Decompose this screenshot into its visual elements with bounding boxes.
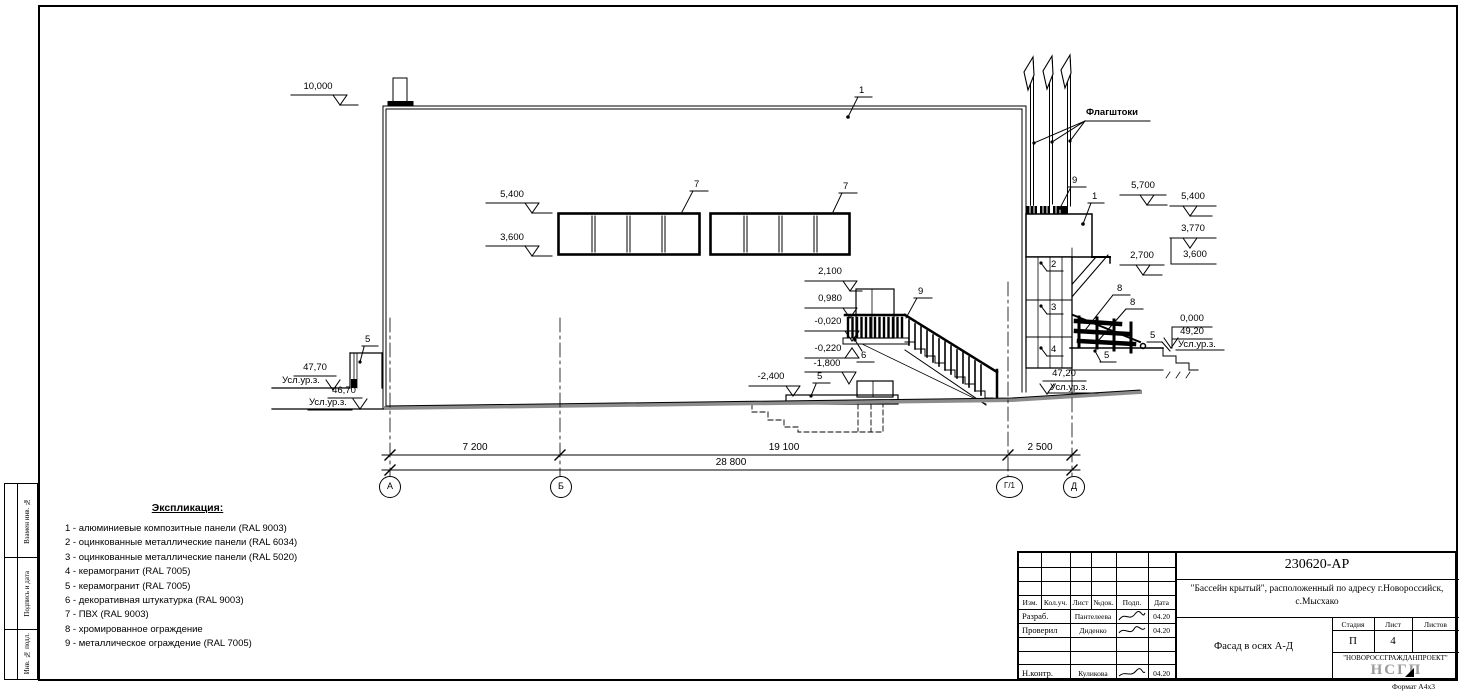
tb-role: Проверил (1022, 625, 1057, 635)
callout-7: 7 (843, 182, 848, 192)
tb-stage-value: П (1332, 635, 1374, 647)
dimension-7200: 7 200 (445, 443, 505, 454)
signature (1117, 667, 1147, 680)
window-bands (559, 214, 850, 255)
legend-item: 8 - хромированное ограждение (65, 623, 310, 637)
elevation-label-3770: 3,770 (1170, 224, 1216, 234)
title-block: Изм. Кол.уч. Лист №док. Подп. Дата Разра… (1017, 551, 1457, 680)
tb-stage-label: Стадия (1332, 620, 1374, 629)
tb-role: Разраб. (1022, 611, 1048, 621)
elevation-label-m0020: -0,020 (800, 317, 856, 327)
signature (1117, 624, 1147, 637)
building-outline (383, 78, 1026, 409)
dimension-19100: 19 100 (754, 443, 814, 454)
callout-9: 9 (1072, 176, 1077, 186)
elevation-label-5400-left: 5,400 (486, 190, 538, 200)
ground-level-label: Усл.ур.з. (282, 376, 320, 386)
legend-item: 2 - оцинкованные металлические панели (R… (65, 536, 310, 550)
tb-col-doc: №док. (1091, 598, 1116, 607)
callout-8: 8 (1117, 284, 1122, 294)
tb-name: Пантелеева (1070, 612, 1116, 621)
elevation-label-3600-left: 3,600 (486, 233, 538, 243)
tb-col-izm: Изм. (1019, 598, 1041, 607)
callout-9: 9 (918, 287, 923, 297)
ground-level-label: Усл.ур.з. (309, 398, 347, 408)
elevation-label-10000: 10,000 (291, 82, 345, 92)
tb-name: Диденко (1070, 626, 1116, 635)
elevation-label-4920: 49,20 (1172, 327, 1212, 337)
tb-drawing-title: Фасад в осях А-Д (1175, 641, 1332, 652)
callout-1: 1 (1092, 192, 1097, 202)
legend-item: 9 - металлическое ограждение (RAL 7005) (65, 637, 310, 651)
elevation-label-4770: 47,70 (294, 363, 336, 373)
legend-item: 7 - ПВХ (RAL 9003) (65, 608, 310, 622)
elevation-label-5400-right: 5,400 (1170, 192, 1216, 202)
entrance-tower (1026, 206, 1110, 391)
format-label: Формат А4х3 (1392, 682, 1435, 691)
org-logo: НСГП (1359, 662, 1434, 679)
callout-3: 3 (1051, 303, 1056, 313)
callout-5: 5 (1104, 351, 1109, 361)
elevation-label-m1800: -1,800 (800, 359, 854, 369)
ground-level-label: Усл.ур.з. (1050, 383, 1088, 393)
axis-bubble-g1: Г/1 (996, 476, 1023, 498)
logo-triangle-icon (1405, 668, 1414, 677)
elevation-label-0980: 0,980 (805, 294, 855, 304)
legend-item: 6 - декоративная штукатурка (RAL 9003) (65, 594, 310, 608)
tb-sheets-label: Листов (1412, 620, 1459, 629)
elevation-label-2100: 2,100 (805, 267, 855, 277)
tb-col-data: Дата (1148, 598, 1175, 607)
callout-8: 8 (1130, 298, 1135, 308)
strip-cell: Подпись и дата (17, 558, 36, 629)
tb-doc-number: 230620-АР (1175, 557, 1459, 573)
strip-cell: Взамен инв. № (17, 484, 36, 557)
tb-object-name: "Бассейн крытый", расположенный по адрес… (1181, 583, 1453, 609)
side-strip: Взамен инв. № Подпись и дата Инв. № подл… (4, 483, 38, 680)
drawing-sheet: 10,000 5,400 3,600 2,100 0,980 -0,020 -0… (0, 0, 1462, 691)
tb-sheet-label: Лист (1374, 620, 1412, 629)
tb-date: 04.20 (1148, 626, 1175, 635)
callout-1: 1 (859, 86, 864, 96)
dimension-2500: 2 500 (1010, 443, 1070, 454)
axis-bubble-a: А (379, 476, 401, 498)
elevation-label-2700: 2,700 (1120, 251, 1164, 261)
elevation-label-m2400: -2,400 (744, 372, 798, 382)
tb-sheet-value: 4 (1374, 635, 1412, 647)
legend-item: 3 - оцинкованные металлические панели (R… (65, 551, 310, 565)
callout-2: 2 (1051, 260, 1056, 270)
tb-date: 04.20 (1148, 669, 1175, 678)
ground-line (386, 390, 1140, 408)
tb-col-kol: Кол.уч. (1041, 598, 1070, 607)
elevation-label-5700: 5,700 (1120, 181, 1166, 191)
legend: Экспликация: 1 - алюминиевые композитные… (65, 502, 310, 652)
tb-col-list: Лист (1070, 598, 1091, 607)
legend-title: Экспликация: (65, 502, 310, 514)
axis-bubble-b: Б (550, 476, 572, 498)
tb-organization: "НОВОРОССГРАЖДАНПРОЕКТ" (1332, 654, 1459, 662)
legend-item: 1 - алюминиевые композитные панели (RAL … (65, 522, 310, 536)
elevation-label-3600-right: 3,600 (1172, 250, 1218, 260)
dimension-28800: 28 800 (701, 458, 761, 469)
flagpoles-label: Флагштоки (1086, 108, 1138, 118)
legend-item: 4 - керамогранит (RAL 7005) (65, 565, 310, 579)
elevation-label-0000: 0,000 (1172, 314, 1212, 324)
elevation-label-4670: 46,70 (325, 386, 363, 396)
callout-5: 5 (817, 372, 822, 382)
signature (1117, 610, 1147, 623)
callout-5: 5 (1150, 331, 1155, 341)
callout-4: 4 (1051, 345, 1056, 355)
tb-date: 04.20 (1148, 612, 1175, 621)
tb-role: Н.контр. (1022, 668, 1053, 678)
exterior-stairs (752, 289, 997, 432)
ground-level-label: Усл.ур.з. (1178, 340, 1216, 350)
tb-name: Куликова (1070, 669, 1116, 678)
legend-item: 5 - керамогранит (RAL 7005) (65, 580, 310, 594)
callout-6: 6 (861, 351, 866, 361)
elevation-label-m0220: -0,220 (800, 344, 856, 354)
callout-5: 5 (365, 335, 370, 345)
axis-bubble-d: Д (1063, 476, 1085, 498)
elevation-label-4720: 47,20 (1043, 369, 1085, 379)
strip-cell: Инв. № подл. (17, 630, 36, 678)
tb-col-podp: Подп. (1116, 598, 1148, 607)
callout-7: 7 (694, 180, 699, 190)
